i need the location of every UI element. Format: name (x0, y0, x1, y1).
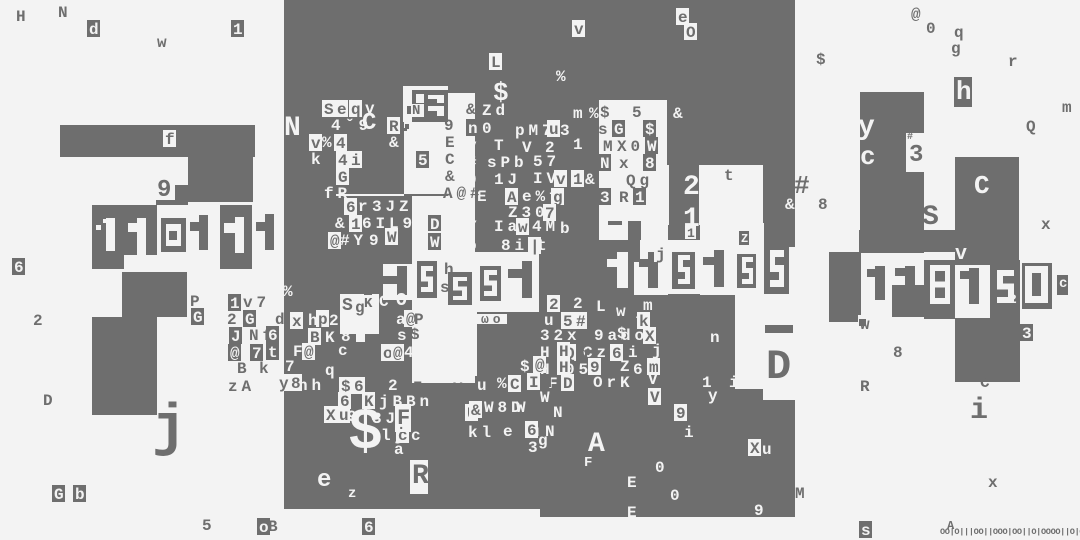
svg-text:d: d (89, 21, 99, 39)
svg-text:R: R (389, 118, 399, 136)
svg-text:H: H (16, 8, 26, 26)
svg-text:g: g (951, 40, 961, 58)
svg-text:9Y: 9Y (590, 359, 617, 377)
svg-text:G: G (245, 311, 255, 329)
svg-text:0: 0 (482, 120, 492, 138)
svg-text:1: 1 (683, 204, 700, 235)
svg-text:7: 7 (545, 205, 555, 223)
svg-text:3: 3 (560, 122, 570, 140)
svg-text:D: D (43, 392, 53, 410)
svg-text:D: D (563, 375, 573, 393)
svg-text:0: 0 (670, 487, 680, 505)
svg-text:@: @ (304, 344, 314, 362)
svg-text:W: W (387, 229, 397, 247)
svg-text:8: 8 (818, 196, 828, 214)
svg-text:&: & (673, 105, 683, 123)
svg-text:E: E (445, 134, 455, 152)
svg-text:v: v (311, 135, 321, 153)
svg-text:i: i (970, 394, 988, 428)
svg-text:G: G (193, 309, 203, 327)
svg-text:@: @ (535, 357, 545, 375)
svg-text:32x 9ado: 32x 9ado (540, 327, 648, 345)
svg-text:f: f (165, 131, 175, 149)
svg-text:&: & (335, 215, 345, 233)
svg-text:#Y: #Y (340, 232, 367, 250)
svg-text:O: O (396, 291, 407, 311)
svg-text:C: C (445, 151, 455, 169)
svg-text:9: 9 (157, 177, 171, 204)
svg-text:Y: Y (467, 218, 477, 236)
svg-text:2: 2 (683, 172, 700, 203)
svg-text:8: 8 (291, 375, 301, 393)
svg-text:0: 0 (655, 459, 665, 477)
svg-text:t: t (268, 344, 278, 362)
svg-text:Q: Q (1026, 118, 1036, 136)
svg-text:&: & (445, 168, 455, 186)
svg-text:K: K (364, 296, 373, 312)
svg-text:h: h (444, 261, 454, 279)
svg-text:6: 6 (527, 422, 537, 440)
svg-text:D: D (766, 343, 791, 391)
svg-text:5: 5 (632, 104, 642, 122)
svg-text:zA: zA (228, 378, 255, 396)
svg-text:L: L (491, 54, 501, 72)
svg-text:8: 8 (893, 344, 903, 362)
svg-text:R: R (619, 189, 629, 207)
svg-text:p: p (318, 311, 328, 329)
svg-text:1: 1 (573, 171, 583, 189)
svg-text:A@#: A@# (443, 185, 484, 203)
svg-text:u: u (762, 441, 772, 459)
svg-text:V: V (650, 389, 660, 407)
svg-text:j: j (656, 246, 666, 264)
svg-text:r: r (358, 198, 368, 216)
svg-text:s: s (598, 121, 608, 139)
svg-text:q: q (325, 362, 335, 380)
svg-text:S: S (324, 101, 334, 119)
svg-text:@: @ (230, 345, 240, 363)
svg-text:w: w (518, 219, 528, 237)
svg-text:%: % (283, 283, 293, 301)
svg-text:4: 4 (338, 152, 348, 170)
svg-text:x: x (1041, 216, 1051, 234)
svg-text:h: h (956, 77, 972, 107)
svg-text:y: y (279, 375, 289, 393)
svg-text:3J: 3J (372, 410, 399, 428)
svg-text:3: 3 (1022, 325, 1032, 343)
svg-text:7: 7 (252, 345, 262, 363)
svg-text:7: 7 (285, 358, 295, 376)
svg-text:W: W (647, 138, 657, 156)
svg-text:5: 5 (563, 313, 573, 331)
svg-text:y: y (467, 137, 477, 155)
svg-text:ˇ: ˇ (918, 86, 928, 104)
svg-text:C: C (362, 110, 376, 137)
svg-text:%: % (322, 134, 332, 152)
svg-text:#: # (907, 132, 913, 143)
svg-text:Zd: Zd (482, 102, 509, 120)
svg-text:V: V (522, 139, 532, 157)
svg-text:x: x (988, 474, 998, 492)
svg-text:#: # (794, 171, 810, 201)
svg-text:&: & (389, 134, 399, 152)
svg-text:9: 9 (444, 117, 454, 135)
svg-text:W: W (430, 234, 440, 252)
svg-text:v7: v7 (243, 294, 270, 312)
svg-text:t: t (724, 167, 734, 185)
svg-text:$: $ (645, 121, 655, 139)
svg-text:c: c (1059, 276, 1067, 292)
svg-text:N: N (553, 404, 563, 422)
svg-text:@: @ (393, 345, 403, 363)
svg-text:#: # (467, 154, 477, 172)
svg-text:e: e (337, 101, 347, 119)
svg-text:2: 2 (549, 296, 559, 314)
svg-text:5: 5 (202, 517, 212, 535)
svg-text:M: M (795, 485, 805, 503)
svg-text:6: 6 (346, 199, 356, 217)
svg-text:v: v (955, 243, 967, 266)
svg-text:j: j (152, 397, 187, 462)
svg-text:G: G (54, 486, 64, 504)
svg-text:x: x (619, 155, 629, 173)
svg-text:k: k (311, 151, 321, 169)
svg-text:C: C (980, 374, 990, 392)
svg-text:c: c (860, 142, 876, 172)
svg-text:1: 1 (635, 189, 645, 207)
svg-text:&: & (466, 101, 476, 119)
svg-text:L: L (596, 298, 606, 316)
svg-text:$: $ (600, 104, 610, 122)
svg-text:6: 6 (14, 259, 24, 277)
svg-text:6: 6 (633, 361, 643, 379)
svg-text:R: R (412, 461, 429, 492)
svg-text:C: C (379, 293, 389, 311)
svg-text:o: o (259, 519, 269, 537)
svg-text:S: S (342, 296, 353, 316)
svg-text:1: 1 (351, 216, 361, 234)
svg-text:u: u (477, 377, 487, 395)
svg-text:o: o (467, 237, 477, 255)
svg-text:k: k (412, 336, 428, 366)
svg-text:C: C (510, 376, 520, 394)
svg-text:d: d (275, 311, 285, 329)
svg-text:$: $ (617, 325, 627, 343)
svg-text:i: i (351, 152, 361, 170)
svg-text:n: n (710, 329, 720, 347)
svg-text:W: W (516, 399, 530, 417)
svg-text:2: 2 (329, 312, 339, 330)
svg-text:z: z (348, 486, 356, 502)
svg-text:M: M (603, 138, 613, 156)
svg-text:E: E (627, 504, 637, 522)
svg-text:&: & (785, 196, 795, 214)
svg-text:|: | (530, 238, 540, 256)
svg-text:3: 3 (528, 439, 538, 457)
svg-text:s: s (397, 327, 407, 345)
svg-text:kl: kl (468, 424, 495, 442)
svg-text:N: N (600, 155, 610, 173)
svg-text:6: 6 (268, 327, 278, 345)
svg-text:K: K (364, 393, 374, 411)
svg-text:$: $ (816, 51, 826, 69)
svg-text:4: 4 (331, 117, 341, 135)
svg-text:w: w (157, 34, 167, 52)
svg-text:A: A (507, 189, 517, 207)
svg-text:%: % (497, 375, 507, 393)
svg-text:2: 2 (227, 311, 237, 329)
svg-text:K: K (325, 329, 335, 347)
svg-text:S: S (922, 202, 939, 233)
svg-text:nh: nh (298, 377, 325, 395)
svg-text:8: 8 (645, 155, 655, 173)
svg-text:w: w (616, 303, 626, 321)
svg-text:G: G (614, 121, 624, 139)
svg-text:1: 1 (573, 136, 583, 154)
svg-text:#: # (576, 313, 586, 331)
svg-text:N: N (58, 4, 68, 22)
svg-text:v: v (574, 21, 584, 39)
svg-text:G: G (338, 169, 348, 187)
svg-text:F: F (584, 455, 592, 471)
svg-text:c: c (411, 427, 421, 445)
svg-text:3JZ: 3JZ (372, 198, 413, 216)
svg-text:g: g (538, 432, 548, 450)
svg-text:X0: X0 (617, 138, 644, 156)
svg-text:1: 1 (230, 295, 240, 313)
svg-text:n: n (468, 120, 478, 138)
svg-text:9: 9 (676, 405, 686, 423)
svg-text:@: @ (330, 233, 340, 251)
svg-text:3: 3 (909, 142, 923, 169)
svg-text:9: 9 (369, 232, 379, 250)
svg-text:u: u (549, 121, 559, 139)
svg-text:e: e (317, 467, 331, 494)
svg-text:9: 9 (754, 502, 764, 520)
svg-text:m: m (649, 359, 659, 377)
svg-text:0: 0 (926, 20, 936, 38)
svg-text:%: % (556, 68, 566, 86)
svg-text:y: y (708, 387, 718, 405)
svg-text:T: T (494, 137, 504, 155)
svg-text:s: s (861, 522, 871, 540)
svg-text:r: r (1008, 53, 1018, 71)
svg-text:·: · (397, 421, 405, 437)
svg-text:3: 3 (600, 189, 610, 207)
svg-text:p: p (445, 217, 455, 235)
svg-text:5: 5 (418, 152, 428, 170)
svg-text:x: x (292, 313, 302, 331)
svg-text:N: N (284, 113, 301, 144)
svg-text:X: X (750, 440, 760, 458)
svg-text:6: 6 (364, 519, 374, 537)
svg-text:X: X (326, 407, 336, 425)
svg-text:&: & (585, 171, 595, 189)
svg-text:E: E (627, 474, 637, 492)
svg-text:R: R (860, 378, 870, 396)
svg-text:v: v (556, 171, 566, 189)
svg-text:J: J (231, 328, 241, 346)
svg-text:c: c (338, 342, 348, 360)
svg-text:Z: Z (741, 232, 748, 246)
svg-text:@: @ (911, 6, 921, 24)
svg-text:i: i (684, 424, 694, 442)
svg-text:ʒ: ʒ (413, 377, 423, 395)
svg-text:C: C (974, 171, 990, 201)
svg-text:s: s (440, 279, 450, 297)
svg-text:1J: 1J (494, 171, 521, 189)
svg-text:q: q (351, 101, 361, 119)
svg-text:4: 4 (336, 135, 346, 153)
svg-text:ωo: ωo (481, 312, 504, 327)
svg-text:X: X (645, 328, 655, 346)
svg-text:&: & (471, 402, 481, 420)
svg-text:b: b (75, 486, 85, 504)
svg-text:v: v (453, 378, 463, 396)
svg-text:2: 2 (33, 312, 43, 330)
svg-text:1: 1 (233, 21, 243, 39)
svg-text:Id: Id (529, 374, 556, 392)
svg-text:OO|O|||OO||OOO|OO||O|OOOO||O|O: OO|O|||OO||OOO|OO||O|OOOO||O|OO (940, 527, 1080, 537)
svg-text:H: H (559, 359, 569, 377)
svg-text:57: 57 (533, 153, 560, 171)
svg-text:2: 2 (573, 295, 583, 313)
svg-text:m: m (1062, 99, 1072, 117)
svg-text:m: m (573, 105, 583, 123)
svg-text:O: O (686, 24, 696, 42)
svg-text:N: N (412, 103, 420, 119)
svg-text:Qg: Qg (626, 172, 653, 190)
svg-text:2: 2 (1009, 292, 1017, 307)
svg-text:b: b (560, 220, 570, 238)
svg-text:u: u (339, 407, 349, 425)
svg-text:y: y (858, 112, 875, 143)
